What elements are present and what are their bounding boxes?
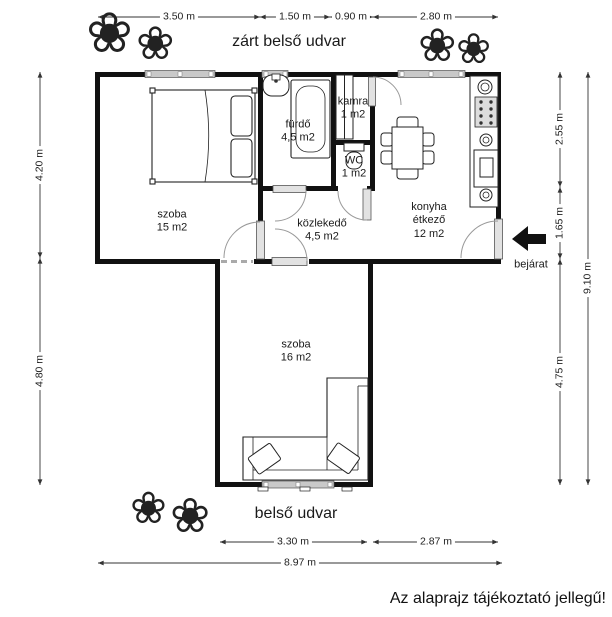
room-label-szoba15: szoba 15 m2 [157, 209, 188, 236]
dim-right-3: 4.75 m [554, 353, 567, 391]
room-label-konyha: konyha étkező 12 m2 [402, 201, 456, 241]
disclaimer-text: Az alaprajz tájékoztató jellegű! [390, 590, 606, 608]
room-area: 4,5 m2 [297, 231, 347, 244]
courtyard-bottom-label: belső udvar [255, 504, 338, 524]
room-label-szoba16: szoba 16 m2 [281, 339, 312, 366]
dim-bottom-2: 2.87 m [417, 536, 455, 549]
room-name: konyha étkező [402, 201, 456, 228]
dim-right-2: 1.65 m [554, 204, 567, 242]
room-label-wc: WC 1 m2 [342, 155, 366, 182]
room-label-kamra: kamra 1 m2 [338, 96, 369, 123]
plant-icon: ❀ [456, 28, 491, 70]
sofa-icon [243, 378, 368, 491]
room-name: szoba [281, 339, 312, 352]
dim-top-4: 2.80 m [417, 11, 455, 24]
room-label-kozlekedo: közlekedő 4,5 m2 [297, 218, 347, 245]
bed-icon [150, 88, 257, 184]
dim-right-1: 2.55 m [554, 110, 567, 148]
room-area: 1 m2 [338, 109, 369, 122]
dim-left-2: 4.80 m [34, 352, 47, 390]
room-area: 4,5 m2 [281, 132, 315, 145]
room-area: 16 m2 [281, 352, 312, 365]
dim-right-total: 9.10 m [582, 259, 595, 297]
kitchen-counter-icon [470, 76, 498, 207]
room-name: közlekedő [297, 218, 347, 231]
entrance-label: bejárat [514, 258, 548, 271]
plant-icon: ❀ [136, 20, 175, 66]
dim-left-1: 4.20 m [34, 146, 47, 184]
dim-bottom-1: 3.30 m [274, 536, 312, 549]
plant-icon: ❀ [418, 22, 457, 68]
room-name: szoba [157, 209, 188, 222]
room-area: 1 m2 [342, 168, 366, 181]
plant-icon: ❀ [86, 6, 133, 62]
room-name: fürdő [281, 119, 315, 132]
floor-plan: ❀ ❀ ❀ ❀ ❀ ❀ zárt belső udvar belső udvar… [0, 0, 612, 617]
plant-icon: ❀ [170, 492, 210, 540]
room-area: 12 m2 [402, 228, 456, 241]
dim-top-2: 1.50 m [276, 11, 314, 24]
room-label-furdo: fürdő 4,5 m2 [281, 119, 315, 146]
dim-top-3: 0.90 m [332, 11, 370, 24]
dim-top-1: 3.50 m [160, 11, 198, 24]
floor-plan-drawing [0, 0, 612, 617]
room-area: 15 m2 [157, 222, 188, 235]
dining-table-icon [381, 117, 434, 179]
room-name: WC [342, 155, 366, 168]
sink-icon [263, 74, 289, 96]
dim-bottom-total: 8.97 m [281, 557, 319, 570]
entrance-arrow-icon [512, 226, 546, 251]
plant-icon: ❀ [130, 487, 167, 531]
courtyard-top-label: zárt belső udvar [232, 32, 346, 52]
room-name: kamra [338, 96, 369, 109]
